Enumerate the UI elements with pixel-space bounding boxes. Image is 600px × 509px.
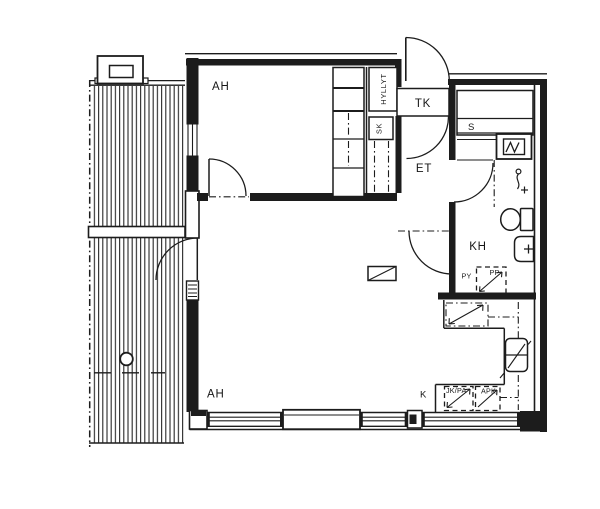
cleaning-closet-label: SK [375, 123, 384, 134]
bedroom: HYLLYT SK AH [209, 68, 397, 197]
vestibule-label: TK [415, 98, 431, 110]
wardrobe [333, 68, 364, 197]
floor-plan-drawing: HYLLYT SK AH TK ET S [0, 0, 600, 509]
kitchen-counter-edge [436, 328, 505, 412]
balcony-decking-hatch [91, 86, 184, 443]
shelf-closet: HYLLYT [369, 68, 397, 112]
sauna-label: S [468, 122, 475, 133]
window-mullion [408, 411, 423, 429]
kitchen-label: K [420, 390, 427, 401]
living-balcony-window [187, 281, 199, 300]
bedroom-door-arc [209, 159, 246, 196]
hall-closet-wall [396, 116, 402, 193]
living-room-label: AH [207, 389, 225, 401]
cleaning-closet: SK [369, 117, 393, 140]
toilet-icon [501, 209, 533, 231]
entrance: TK [397, 38, 449, 159]
balcony [89, 56, 199, 447]
living-room-furniture [368, 267, 396, 281]
wall-left [186, 58, 200, 412]
dishwasher-label: APK [481, 387, 496, 396]
balcony-drain-icon [120, 353, 133, 366]
living-room: AH [207, 267, 396, 401]
vent-hatch-icon [110, 66, 134, 78]
window-2 [360, 412, 408, 427]
stove-space [444, 300, 488, 328]
hall: ET [398, 163, 452, 274]
balcony-partition [89, 227, 186, 238]
bedroom-wall-left-piece [197, 193, 208, 201]
fridge-label: JK/PA [446, 386, 466, 395]
wall-top-right [448, 79, 547, 85]
washer-label: PY [462, 272, 472, 281]
wall-bottom [190, 410, 548, 432]
wall-top-left [186, 59, 397, 66]
bedroom-label: AH [212, 81, 230, 93]
hall-sauna-wall-upper [449, 85, 456, 160]
kitchen: JK/PA APK K [420, 300, 531, 412]
shower-icon [516, 169, 528, 193]
sink-icon [515, 237, 534, 262]
hall-label: ET [416, 163, 432, 175]
hall-bathroom-wall-lower [449, 202, 456, 297]
wall-right [540, 79, 547, 432]
balcony-storage-box [95, 56, 148, 84]
bedroom-wall [250, 193, 397, 201]
floor-plan-page: HYLLYT SK AH TK ET S [0, 0, 600, 509]
shelf-closet-label: HYLLYT [379, 73, 388, 104]
window-3 [422, 412, 520, 427]
bathroom: KH PY PP [454, 160, 534, 296]
bathroom-label: KH [469, 241, 487, 253]
open-closet [375, 141, 389, 195]
vestibule-door-arc [407, 117, 449, 159]
window-bay-section [283, 410, 360, 429]
bedroom-balcony-window [187, 122, 199, 158]
bathroom-door-arc [454, 163, 493, 202]
wall-pillar [186, 191, 200, 238]
hall-door-arc [409, 231, 452, 274]
entrance-door-arc [406, 38, 450, 82]
sauna-stove-icon [497, 134, 532, 159]
window-1 [207, 412, 283, 427]
sauna: S [457, 91, 533, 161]
dryer-label: PP [490, 268, 500, 277]
